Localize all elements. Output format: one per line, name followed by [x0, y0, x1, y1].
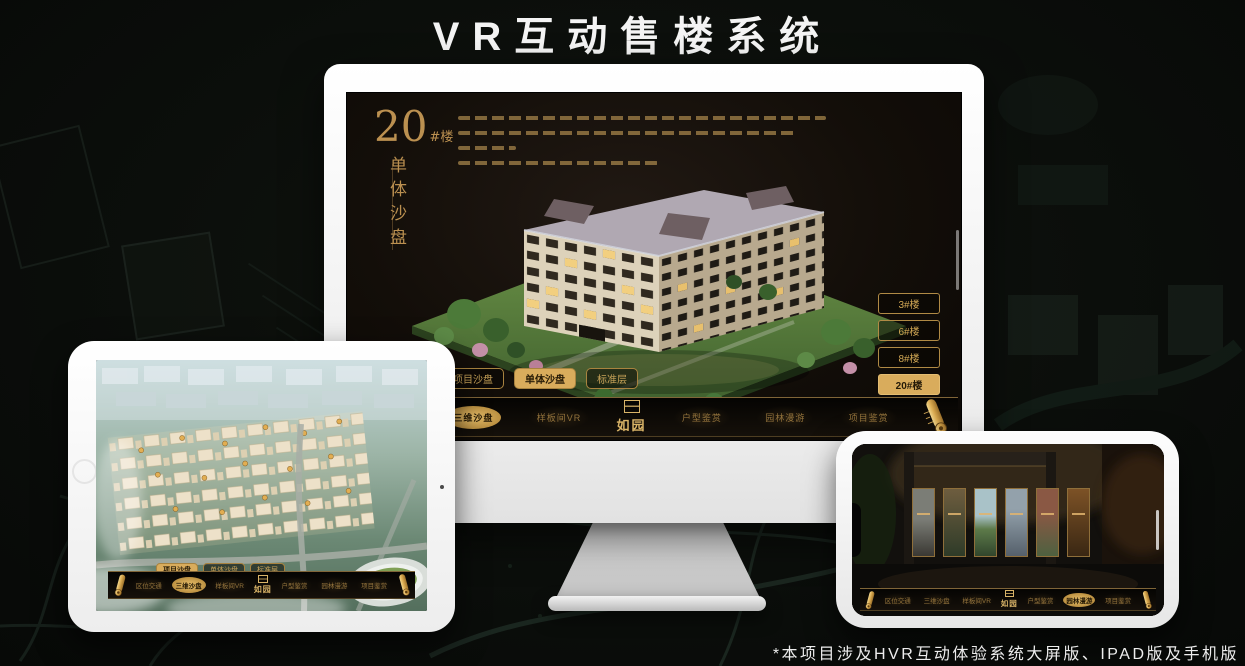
menu-scroll-handle[interactable] — [394, 572, 413, 599]
nav-item-floorplan[interactable]: 户型鉴赏 — [1025, 593, 1057, 607]
background-photo-hint — [988, 45, 1243, 435]
camera-notch — [852, 503, 861, 557]
nav-item-showroom-vr[interactable]: 样板间VR — [959, 593, 994, 607]
monitor-view-tabs: 项目沙盘 单体沙盘 标准层 — [442, 368, 638, 389]
nav-item-showroom-vr[interactable]: 样板间VR — [529, 406, 590, 429]
menu-scroll-handle[interactable] — [110, 572, 129, 599]
unit-number-text: 20 — [374, 102, 427, 151]
text-line — [458, 116, 826, 120]
nav-item-sandbox-3d[interactable]: 三维沙盘 — [921, 593, 953, 607]
gallery-panel-6[interactable] — [1067, 488, 1090, 557]
brand-logo: 如园 — [1001, 590, 1018, 609]
menu-scroll-handle[interactable] — [1139, 588, 1155, 610]
building-button-6[interactable]: 6#楼 — [878, 320, 940, 341]
home-indicator[interactable] — [1156, 510, 1159, 550]
poster-title: VR互动售楼系统 — [433, 4, 833, 62]
building-button-8[interactable]: 8#楼 — [878, 347, 940, 368]
gallery-panel-1[interactable] — [912, 488, 935, 557]
tab-single-sandbox[interactable]: 单体沙盘 — [514, 368, 576, 389]
tablet-device: 项目沙盘 单体沙盘 标准层 区位交通 三维沙盘 样板间VR 如园 户型鉴赏 园林… — [68, 341, 455, 632]
nav-item-project-view[interactable]: 项目鉴赏 — [841, 406, 897, 429]
monitor-stand-neck — [555, 520, 761, 600]
nav-item-garden-tour[interactable]: 园林漫游 — [1063, 593, 1095, 607]
background-plaque — [121, 232, 225, 341]
nav-item-garden-tour[interactable]: 园林漫游 — [757, 406, 813, 429]
unit-suffix-text: #楼 — [429, 130, 453, 145]
text-line — [458, 146, 516, 150]
tab-standard-floor[interactable]: 标准层 — [586, 368, 638, 389]
phone-nav-bar: 区位交通 三维沙盘 样板间VR 如园 户型鉴赏 园林漫游 项目鉴赏 — [860, 588, 1156, 611]
footnote: *本项目涉及HVR互动体验系统大屏版、IPAD版及手机版 — [773, 640, 1239, 664]
nav-item-location-transport[interactable]: 区位交通 — [882, 593, 914, 607]
building-selector: 3#楼 6#楼 8#楼 20#楼 — [878, 293, 940, 401]
screen-reflection — [956, 230, 959, 290]
brand-logo-text: 如园 — [1001, 598, 1018, 609]
camera-dot — [440, 485, 444, 489]
nav-item-floorplan[interactable]: 户型鉴赏 — [674, 406, 730, 429]
monitor-stand-base — [548, 596, 766, 611]
nav-item-project-view[interactable]: 项目鉴赏 — [1102, 593, 1134, 607]
home-button[interactable] — [72, 459, 97, 484]
seal-icon — [258, 575, 268, 583]
phone-screen: 区位交通 三维沙盘 样板间VR 如园 户型鉴赏 园林漫游 项目鉴赏 — [852, 444, 1164, 616]
sandbox-3d-viewport[interactable] — [404, 164, 914, 434]
nav-item-showroom-vr[interactable]: 样板间VR — [211, 577, 248, 593]
background-frame — [0, 125, 110, 270]
gallery-panel-2[interactable] — [943, 488, 966, 557]
seal-icon — [1005, 590, 1014, 597]
tablet-screen: 项目沙盘 单体沙盘 标准层 区位交通 三维沙盘 样板间VR 如园 户型鉴赏 园林… — [96, 360, 427, 611]
poster: VR互动售楼系统 20#楼 单体沙盘 — [0, 0, 1245, 666]
nav-item-location-transport[interactable]: 区位交通 — [132, 577, 166, 593]
gallery-panel-5[interactable] — [1036, 488, 1059, 557]
brand-logo: 如园 — [254, 575, 272, 595]
gallery-panel-4[interactable] — [1005, 488, 1028, 557]
nav-item-project-view[interactable]: 项目鉴赏 — [357, 577, 391, 593]
brand-logo-text: 如园 — [617, 415, 647, 434]
building-button-3[interactable]: 3#楼 — [878, 293, 940, 314]
brand-logo: 如园 — [617, 400, 647, 434]
brand-logo-text: 如园 — [254, 584, 272, 595]
nav-item-garden-tour[interactable]: 园林漫游 — [317, 577, 351, 593]
phone-device: 区位交通 三维沙盘 样板间VR 如园 户型鉴赏 园林漫游 项目鉴赏 — [836, 431, 1179, 628]
text-line — [458, 131, 798, 135]
tablet-nav-bar: 区位交通 三维沙盘 样板间VR 如园 户型鉴赏 园林漫游 项目鉴赏 — [108, 571, 415, 599]
gallery-panel-3[interactable] — [974, 488, 997, 557]
menu-scroll-handle[interactable] — [862, 588, 878, 610]
nav-item-sandbox-3d[interactable]: 三维沙盘 — [172, 577, 206, 593]
seal-icon — [624, 400, 640, 413]
building-button-20[interactable]: 20#楼 — [878, 374, 940, 395]
nav-item-floorplan[interactable]: 户型鉴赏 — [278, 577, 312, 593]
unit-number: 20#楼 — [374, 106, 453, 148]
unit-title-rule — [392, 164, 393, 250]
